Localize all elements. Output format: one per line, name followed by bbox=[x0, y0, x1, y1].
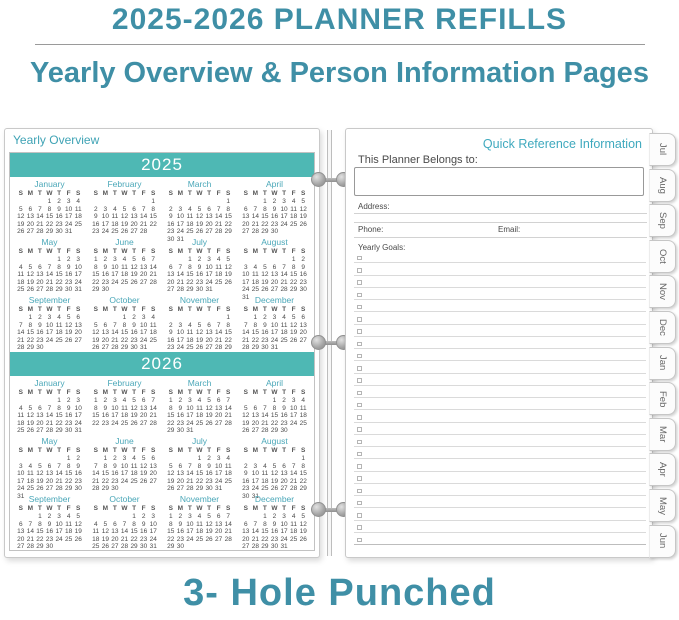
day-cell bbox=[298, 228, 308, 236]
day-cell bbox=[204, 314, 214, 322]
mini-month-2026-september: SeptemberSMTWTFS123456789101112131415161… bbox=[12, 493, 87, 551]
weekday-header-cell: T bbox=[54, 190, 64, 198]
weekday-header-cell: W bbox=[120, 505, 130, 513]
day-cell: 15 bbox=[129, 528, 139, 536]
day-cell: 22 bbox=[289, 279, 299, 287]
day-cell bbox=[251, 397, 261, 405]
day-cell: 16 bbox=[91, 221, 101, 229]
day-cell: 15 bbox=[185, 271, 195, 279]
day-cell: 9 bbox=[91, 213, 101, 221]
day-cell: 27 bbox=[129, 228, 139, 236]
day-cell: 17 bbox=[214, 470, 224, 478]
weekday-header-cell: F bbox=[139, 306, 149, 314]
day-cell: 4 bbox=[26, 463, 36, 471]
day-cell: 8 bbox=[64, 463, 74, 471]
month-day-grid: SMTWTFS123456789101112131415161718192021… bbox=[162, 248, 237, 294]
day-cell bbox=[35, 256, 45, 264]
day-cell: 1 bbox=[251, 314, 261, 322]
day-cell: 21 bbox=[120, 536, 130, 544]
day-cell: 16 bbox=[45, 528, 55, 536]
day-cell bbox=[214, 198, 224, 206]
mini-month-2026-august: AugustSMTWTFS123456789101112131415161718… bbox=[237, 435, 312, 493]
day-cell: 22 bbox=[166, 536, 176, 544]
day-cell bbox=[101, 198, 111, 206]
day-cell: 13 bbox=[16, 528, 26, 536]
weekday-header-cell: T bbox=[129, 447, 139, 455]
goal-line bbox=[354, 423, 646, 435]
day-cell: 15 bbox=[260, 213, 270, 221]
day-cell: 17 bbox=[251, 478, 261, 486]
weekday-header-cell: S bbox=[223, 447, 233, 455]
day-cell: 27 bbox=[214, 420, 224, 428]
day-cell: 2 bbox=[101, 256, 111, 264]
day-cell: 23 bbox=[270, 221, 280, 229]
day-cell: 20 bbox=[148, 470, 158, 478]
day-cell: 3 bbox=[101, 206, 111, 214]
goal-checkbox bbox=[357, 329, 362, 334]
day-cell: 11 bbox=[251, 271, 261, 279]
day-cell: 4 bbox=[185, 206, 195, 214]
weekday-header-cell: M bbox=[251, 190, 261, 198]
day-cell: 6 bbox=[251, 405, 261, 413]
day-cell: 8 bbox=[148, 206, 158, 214]
ring-ball-icon bbox=[311, 335, 326, 350]
day-cell: 20 bbox=[16, 536, 26, 544]
day-cell: 18 bbox=[16, 279, 26, 287]
day-cell: 5 bbox=[195, 322, 205, 330]
day-cell: 17 bbox=[176, 221, 186, 229]
day-cell: 13 bbox=[270, 271, 280, 279]
day-cell: 13 bbox=[279, 470, 289, 478]
mini-month-2026-may: MaySMTWTFS123456789101112131415161718192… bbox=[12, 435, 87, 493]
day-cell: 25 bbox=[185, 344, 195, 352]
weekday-header-cell: F bbox=[289, 505, 299, 513]
day-cell: 21 bbox=[185, 478, 195, 486]
month-day-grid: SMTWTFS123456789101112131415161718192021… bbox=[87, 505, 162, 551]
day-cell: 31 bbox=[185, 427, 195, 435]
day-cell: 6 bbox=[241, 206, 251, 214]
day-cell: 28 bbox=[176, 286, 186, 294]
day-cell bbox=[139, 286, 149, 294]
day-cell: 21 bbox=[223, 528, 233, 536]
day-cell: 22 bbox=[45, 221, 55, 229]
goal-line bbox=[354, 361, 646, 373]
month-tab-nov: Nov bbox=[649, 275, 676, 308]
day-cell: 20 bbox=[139, 271, 149, 279]
day-cell bbox=[110, 314, 120, 322]
day-cell: 18 bbox=[110, 221, 120, 229]
day-cell: 26 bbox=[166, 485, 176, 493]
weekday-header-cell: T bbox=[129, 505, 139, 513]
day-cell: 12 bbox=[166, 470, 176, 478]
month-tab-sep: Sep bbox=[649, 204, 676, 237]
day-cell: 7 bbox=[120, 521, 130, 529]
day-cell: 16 bbox=[35, 329, 45, 337]
day-cell: 10 bbox=[270, 322, 280, 330]
day-cell: 14 bbox=[223, 405, 233, 413]
day-cell bbox=[16, 256, 26, 264]
day-cell: 21 bbox=[251, 536, 261, 544]
weekday-header-cell: F bbox=[139, 447, 149, 455]
day-cell: 30 bbox=[270, 228, 280, 236]
day-cell bbox=[110, 198, 120, 206]
day-cell: 9 bbox=[270, 521, 280, 529]
day-cell: 22 bbox=[129, 536, 139, 544]
day-cell: 13 bbox=[73, 322, 83, 330]
day-cell: 17 bbox=[64, 213, 74, 221]
day-cell: 3 bbox=[214, 455, 224, 463]
weekday-header-cell: M bbox=[251, 389, 261, 397]
day-cell: 30 bbox=[110, 485, 120, 493]
day-cell: 24 bbox=[139, 337, 149, 345]
day-cell: 23 bbox=[270, 536, 280, 544]
day-cell bbox=[270, 256, 280, 264]
day-cell: 21 bbox=[139, 221, 149, 229]
weekday-header-cell: T bbox=[204, 447, 214, 455]
weekday-header-cell: S bbox=[148, 190, 158, 198]
day-cell: 21 bbox=[148, 412, 158, 420]
day-cell: 6 bbox=[139, 397, 149, 405]
goal-line bbox=[354, 410, 646, 422]
day-cell: 15 bbox=[26, 329, 36, 337]
day-cell: 17 bbox=[120, 470, 130, 478]
day-cell: 8 bbox=[260, 521, 270, 529]
day-cell: 19 bbox=[270, 478, 280, 486]
day-cell: 11 bbox=[185, 329, 195, 337]
day-cell: 7 bbox=[139, 206, 149, 214]
day-cell: 9 bbox=[54, 206, 64, 214]
day-cell: 10 bbox=[289, 405, 299, 413]
day-cell: 5 bbox=[270, 463, 280, 471]
weekday-header-cell: T bbox=[54, 447, 64, 455]
day-cell bbox=[120, 513, 130, 521]
weekday-header-cell: F bbox=[214, 447, 224, 455]
day-cell: 6 bbox=[204, 206, 214, 214]
day-cell: 1 bbox=[54, 397, 64, 405]
day-cell: 10 bbox=[185, 521, 195, 529]
day-cell bbox=[251, 256, 261, 264]
weekday-header-cell: T bbox=[260, 306, 270, 314]
weekday-header-cell: M bbox=[176, 447, 186, 455]
day-cell bbox=[251, 513, 261, 521]
day-cell: 5 bbox=[241, 405, 251, 413]
weekday-header-cell: W bbox=[195, 190, 205, 198]
day-cell: 24 bbox=[176, 344, 186, 352]
address-line bbox=[354, 222, 647, 223]
day-cell: 4 bbox=[251, 264, 261, 272]
weekday-header-cell: F bbox=[214, 306, 224, 314]
day-cell: 30 bbox=[195, 286, 205, 294]
phone-label: Phone: bbox=[358, 225, 383, 234]
day-cell: 6 bbox=[298, 314, 308, 322]
day-cell: 23 bbox=[176, 536, 186, 544]
day-cell: 6 bbox=[35, 264, 45, 272]
weekday-header-cell: M bbox=[26, 190, 36, 198]
goal-checkbox bbox=[357, 476, 362, 481]
day-cell: 6 bbox=[214, 513, 224, 521]
day-cell: 19 bbox=[289, 329, 299, 337]
day-cell: 5 bbox=[289, 314, 299, 322]
day-cell bbox=[26, 397, 36, 405]
weekday-header-cell: T bbox=[35, 389, 45, 397]
day-cell: 3 bbox=[110, 256, 120, 264]
day-cell bbox=[185, 314, 195, 322]
day-cell: 21 bbox=[214, 221, 224, 229]
weekday-header-cell: S bbox=[91, 306, 101, 314]
month-tab-may: May bbox=[649, 489, 676, 522]
day-cell: 25 bbox=[129, 478, 139, 486]
weekday-header-cell: F bbox=[64, 190, 74, 198]
day-cell: 1 bbox=[195, 455, 205, 463]
weekday-header-cell: S bbox=[223, 389, 233, 397]
day-cell: 19 bbox=[260, 279, 270, 287]
day-cell: 17 bbox=[16, 478, 26, 486]
day-cell: 27 bbox=[214, 536, 224, 544]
day-cell bbox=[176, 256, 186, 264]
weekday-header-cell: S bbox=[91, 190, 101, 198]
day-cell: 6 bbox=[241, 521, 251, 529]
day-cell: 18 bbox=[129, 470, 139, 478]
day-cell: 9 bbox=[166, 329, 176, 337]
day-cell: 26 bbox=[298, 536, 308, 544]
day-cell: 1 bbox=[260, 198, 270, 206]
day-cell: 18 bbox=[54, 329, 64, 337]
ring-ball-icon bbox=[311, 172, 326, 187]
weekday-header-cell: F bbox=[289, 447, 299, 455]
day-cell: 29 bbox=[120, 344, 130, 352]
day-cell: 7 bbox=[26, 521, 36, 529]
day-cell bbox=[176, 455, 186, 463]
calendar-block: 2025 JanuarySMTWTFS123456789101112131415… bbox=[9, 152, 315, 551]
day-cell: 1 bbox=[64, 455, 74, 463]
goal-checkbox bbox=[357, 427, 362, 432]
day-cell: 3 bbox=[64, 198, 74, 206]
goal-checkbox bbox=[357, 513, 362, 518]
day-cell: 20 bbox=[270, 279, 280, 287]
day-cell bbox=[91, 455, 101, 463]
day-cell: 1 bbox=[45, 198, 55, 206]
day-cell: 14 bbox=[176, 271, 186, 279]
day-cell: 26 bbox=[120, 228, 130, 236]
day-cell: 18 bbox=[73, 213, 83, 221]
day-cell: 26 bbox=[101, 543, 111, 551]
day-cell: 8 bbox=[166, 521, 176, 529]
day-cell bbox=[185, 543, 195, 551]
weekday-header-cell: T bbox=[279, 505, 289, 513]
day-cell: 28 bbox=[139, 228, 149, 236]
weekday-header-cell: W bbox=[120, 248, 130, 256]
day-cell: 25 bbox=[214, 279, 224, 287]
day-cell: 14 bbox=[54, 470, 64, 478]
day-cell: 17 bbox=[185, 412, 195, 420]
day-cell: 2 bbox=[241, 463, 251, 471]
day-cell: 15 bbox=[223, 329, 233, 337]
day-cell: 17 bbox=[279, 528, 289, 536]
month-day-grid: SMTWTFS123456789101112131415161718192021… bbox=[87, 248, 162, 294]
day-cell: 3 bbox=[16, 463, 26, 471]
day-cell: 29 bbox=[54, 427, 64, 435]
day-cell: 5 bbox=[73, 513, 83, 521]
weekday-header-cell: S bbox=[16, 190, 26, 198]
day-cell: 21 bbox=[91, 478, 101, 486]
day-cell: 21 bbox=[241, 337, 251, 345]
weekday-header-cell: F bbox=[214, 389, 224, 397]
day-cell: 28 bbox=[223, 536, 233, 544]
day-cell: 15 bbox=[101, 470, 111, 478]
day-cell: 7 bbox=[35, 206, 45, 214]
day-cell: 24 bbox=[241, 286, 251, 294]
day-cell: 7 bbox=[185, 463, 195, 471]
day-cell: 17 bbox=[101, 221, 111, 229]
day-cell: 3 bbox=[270, 314, 280, 322]
day-cell: 25 bbox=[91, 543, 101, 551]
day-cell: 3 bbox=[54, 513, 64, 521]
weekday-header-cell: W bbox=[45, 505, 55, 513]
day-cell: 19 bbox=[204, 528, 214, 536]
day-cell: 26 bbox=[223, 279, 233, 287]
goal-line bbox=[354, 386, 646, 398]
day-cell: 14 bbox=[139, 213, 149, 221]
day-cell: 29 bbox=[35, 543, 45, 551]
day-cell: 19 bbox=[35, 478, 45, 486]
weekday-header-cell: T bbox=[185, 248, 195, 256]
weekday-header-cell: F bbox=[64, 389, 74, 397]
day-cell: 24 bbox=[185, 536, 195, 544]
day-cell bbox=[129, 485, 139, 493]
day-cell: 14 bbox=[185, 470, 195, 478]
day-cell: 2 bbox=[35, 314, 45, 322]
day-cell: 28 bbox=[214, 228, 224, 236]
weekday-header-cell: F bbox=[214, 248, 224, 256]
day-cell: 28 bbox=[54, 485, 64, 493]
day-cell bbox=[148, 344, 158, 352]
day-cell: 16 bbox=[204, 470, 214, 478]
day-cell bbox=[204, 427, 214, 435]
day-cell: 22 bbox=[101, 478, 111, 486]
day-cell: 6 bbox=[45, 463, 55, 471]
weekday-header-cell: M bbox=[176, 190, 186, 198]
day-cell: 10 bbox=[16, 470, 26, 478]
day-cell: 5 bbox=[166, 463, 176, 471]
month-day-grid: SMTWTFS123456789101112131415161718192021… bbox=[87, 190, 162, 236]
day-cell: 8 bbox=[260, 206, 270, 214]
mini-month-2026-december: DecemberSMTWTFS1234567891011121314151617… bbox=[237, 493, 312, 551]
day-cell bbox=[64, 543, 74, 551]
day-cell: 23 bbox=[260, 337, 270, 345]
day-cell bbox=[35, 198, 45, 206]
day-cell: 11 bbox=[148, 322, 158, 330]
day-cell: 14 bbox=[110, 329, 120, 337]
day-cell: 14 bbox=[35, 213, 45, 221]
day-cell: 19 bbox=[166, 478, 176, 486]
day-cell: 11 bbox=[260, 470, 270, 478]
weekday-header-cell: T bbox=[204, 190, 214, 198]
day-cell: 28 bbox=[148, 420, 158, 428]
day-cell: 10 bbox=[139, 322, 149, 330]
day-cell bbox=[45, 256, 55, 264]
day-cell: 1 bbox=[185, 256, 195, 264]
day-cell: 21 bbox=[260, 420, 270, 428]
day-cell bbox=[176, 314, 186, 322]
day-cell: 30 bbox=[176, 543, 186, 551]
month-day-grid: SMTWTFS123456789101112131415161718192021… bbox=[162, 447, 237, 493]
day-cell: 1 bbox=[166, 513, 176, 521]
day-cell: 9 bbox=[139, 521, 149, 529]
day-cell: 30 bbox=[45, 543, 55, 551]
weekday-header-cell: T bbox=[35, 447, 45, 455]
day-cell: 24 bbox=[214, 478, 224, 486]
day-cell: 11 bbox=[64, 521, 74, 529]
day-cell: 31 bbox=[279, 543, 289, 551]
weekday-header-cell: F bbox=[214, 190, 224, 198]
day-cell: 15 bbox=[91, 412, 101, 420]
day-cell: 6 bbox=[204, 322, 214, 330]
mini-month-2025-september: SeptemberSMTWTFS123456789101112131415161… bbox=[12, 294, 87, 352]
day-cell: 18 bbox=[195, 412, 205, 420]
day-cell: 14 bbox=[214, 329, 224, 337]
day-cell bbox=[279, 344, 289, 352]
day-cell: 26 bbox=[139, 478, 149, 486]
day-cell bbox=[214, 427, 224, 435]
day-cell: 2 bbox=[54, 198, 64, 206]
day-cell: 26 bbox=[241, 427, 251, 435]
mini-month-2025-november: NovemberSMTWTFS1234567891011121314151617… bbox=[162, 294, 237, 352]
mini-month-2025-may: MaySMTWTFS123456789101112131415161718192… bbox=[12, 236, 87, 294]
day-cell: 25 bbox=[148, 337, 158, 345]
day-cell: 9 bbox=[204, 463, 214, 471]
day-cell: 27 bbox=[204, 228, 214, 236]
day-cell: 21 bbox=[45, 420, 55, 428]
day-cell bbox=[195, 543, 205, 551]
month-day-grid: SMTWTFS123456789101112131415161718192021… bbox=[12, 190, 87, 236]
month-name: January bbox=[12, 178, 87, 190]
weekday-header-cell: S bbox=[298, 447, 308, 455]
day-cell: 29 bbox=[289, 286, 299, 294]
weekday-header-cell: M bbox=[176, 306, 186, 314]
day-cell: 3 bbox=[148, 513, 158, 521]
weekday-header-cell: T bbox=[204, 389, 214, 397]
day-cell: 1 bbox=[260, 513, 270, 521]
day-cell: 5 bbox=[260, 264, 270, 272]
day-cell: 21 bbox=[45, 279, 55, 287]
day-cell: 28 bbox=[185, 485, 195, 493]
day-cell: 2 bbox=[270, 513, 280, 521]
day-cell: 6 bbox=[73, 314, 83, 322]
day-cell: 5 bbox=[204, 513, 214, 521]
day-cell: 24 bbox=[101, 228, 111, 236]
day-cell: 9 bbox=[195, 264, 205, 272]
day-cell: 6 bbox=[26, 206, 36, 214]
day-cell: 12 bbox=[129, 264, 139, 272]
day-cell: 6 bbox=[101, 322, 111, 330]
day-cell: 18 bbox=[195, 528, 205, 536]
day-cell bbox=[26, 455, 36, 463]
day-cell: 24 bbox=[54, 536, 64, 544]
goal-line bbox=[354, 251, 646, 263]
weekday-header-cell: M bbox=[251, 306, 261, 314]
weekday-header-cell: W bbox=[270, 248, 280, 256]
month-day-grid: SMTWTFS123456789101112131415161718192021… bbox=[12, 306, 87, 352]
day-cell: 30 bbox=[54, 228, 64, 236]
weekday-header-cell: F bbox=[289, 190, 299, 198]
day-cell: 26 bbox=[35, 485, 45, 493]
day-cell: 19 bbox=[73, 528, 83, 536]
day-cell: 17 bbox=[73, 271, 83, 279]
day-cell: 12 bbox=[139, 463, 149, 471]
day-cell: 20 bbox=[110, 536, 120, 544]
day-cell: 8 bbox=[35, 521, 45, 529]
day-cell: 24 bbox=[270, 337, 280, 345]
